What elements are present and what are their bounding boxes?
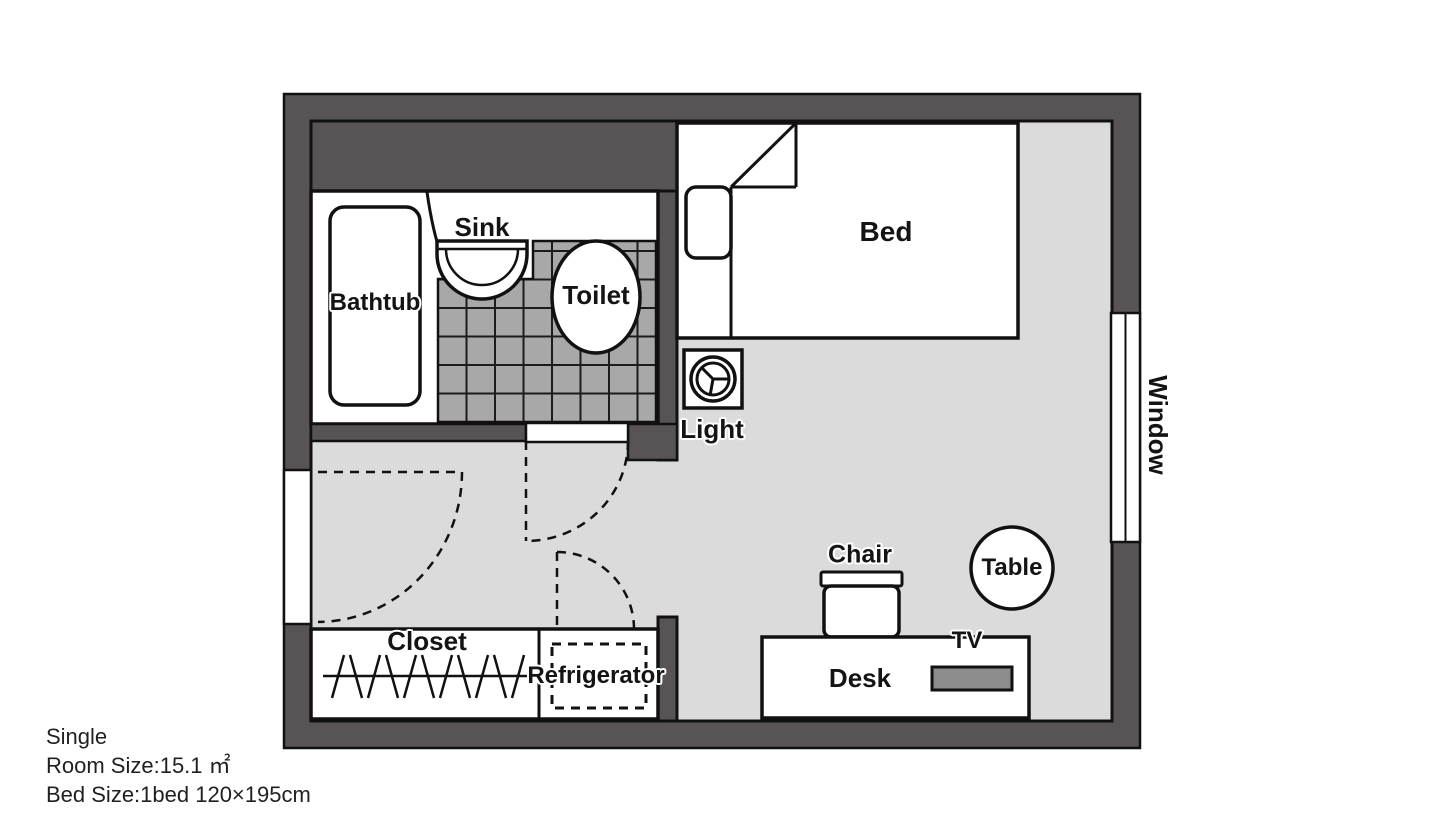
label-window: Window [1145, 375, 1171, 474]
pillow-shape [686, 187, 731, 258]
wall-block-top-left [311, 121, 677, 191]
label-table: Table [982, 556, 1043, 580]
bathroom-door-opening [526, 423, 628, 442]
entrance-door-opening [284, 470, 311, 624]
wall-bathroom-right [658, 191, 677, 460]
label-chair: Chair [828, 543, 892, 568]
label-tv: TV [952, 629, 983, 653]
chair-seat [824, 586, 899, 637]
wall-bathroom-bottom-right [628, 424, 677, 460]
label-toilet: Toilet [562, 282, 629, 308]
bed-size: Bed Size:1bed 120×195cm [46, 780, 311, 809]
label-light: Light [680, 416, 744, 442]
room-info: Single Room Size:15.1 ㎡ Bed Size:1bed 12… [46, 722, 311, 809]
label-sink: Sink [455, 214, 510, 240]
label-bathtub: Bathtub [330, 291, 421, 315]
label-refrigerator: Refrigerator [527, 664, 664, 688]
label-bed: Bed [860, 218, 913, 246]
room-type: Single [46, 722, 311, 751]
bed-shape [677, 123, 1018, 338]
light-fixture [684, 350, 742, 408]
tv-shape [932, 667, 1012, 690]
wall-bathroom-bottom-left [311, 424, 526, 441]
label-desk: Desk [829, 665, 891, 691]
floor-plan: Bathtub Sink Toilet Bed Light Window Cha… [0, 0, 1440, 840]
chair-back [821, 572, 902, 586]
room-size: Room Size:15.1 ㎡ [46, 751, 311, 780]
window-shape [1111, 313, 1140, 542]
label-closet: Closet [387, 628, 466, 654]
